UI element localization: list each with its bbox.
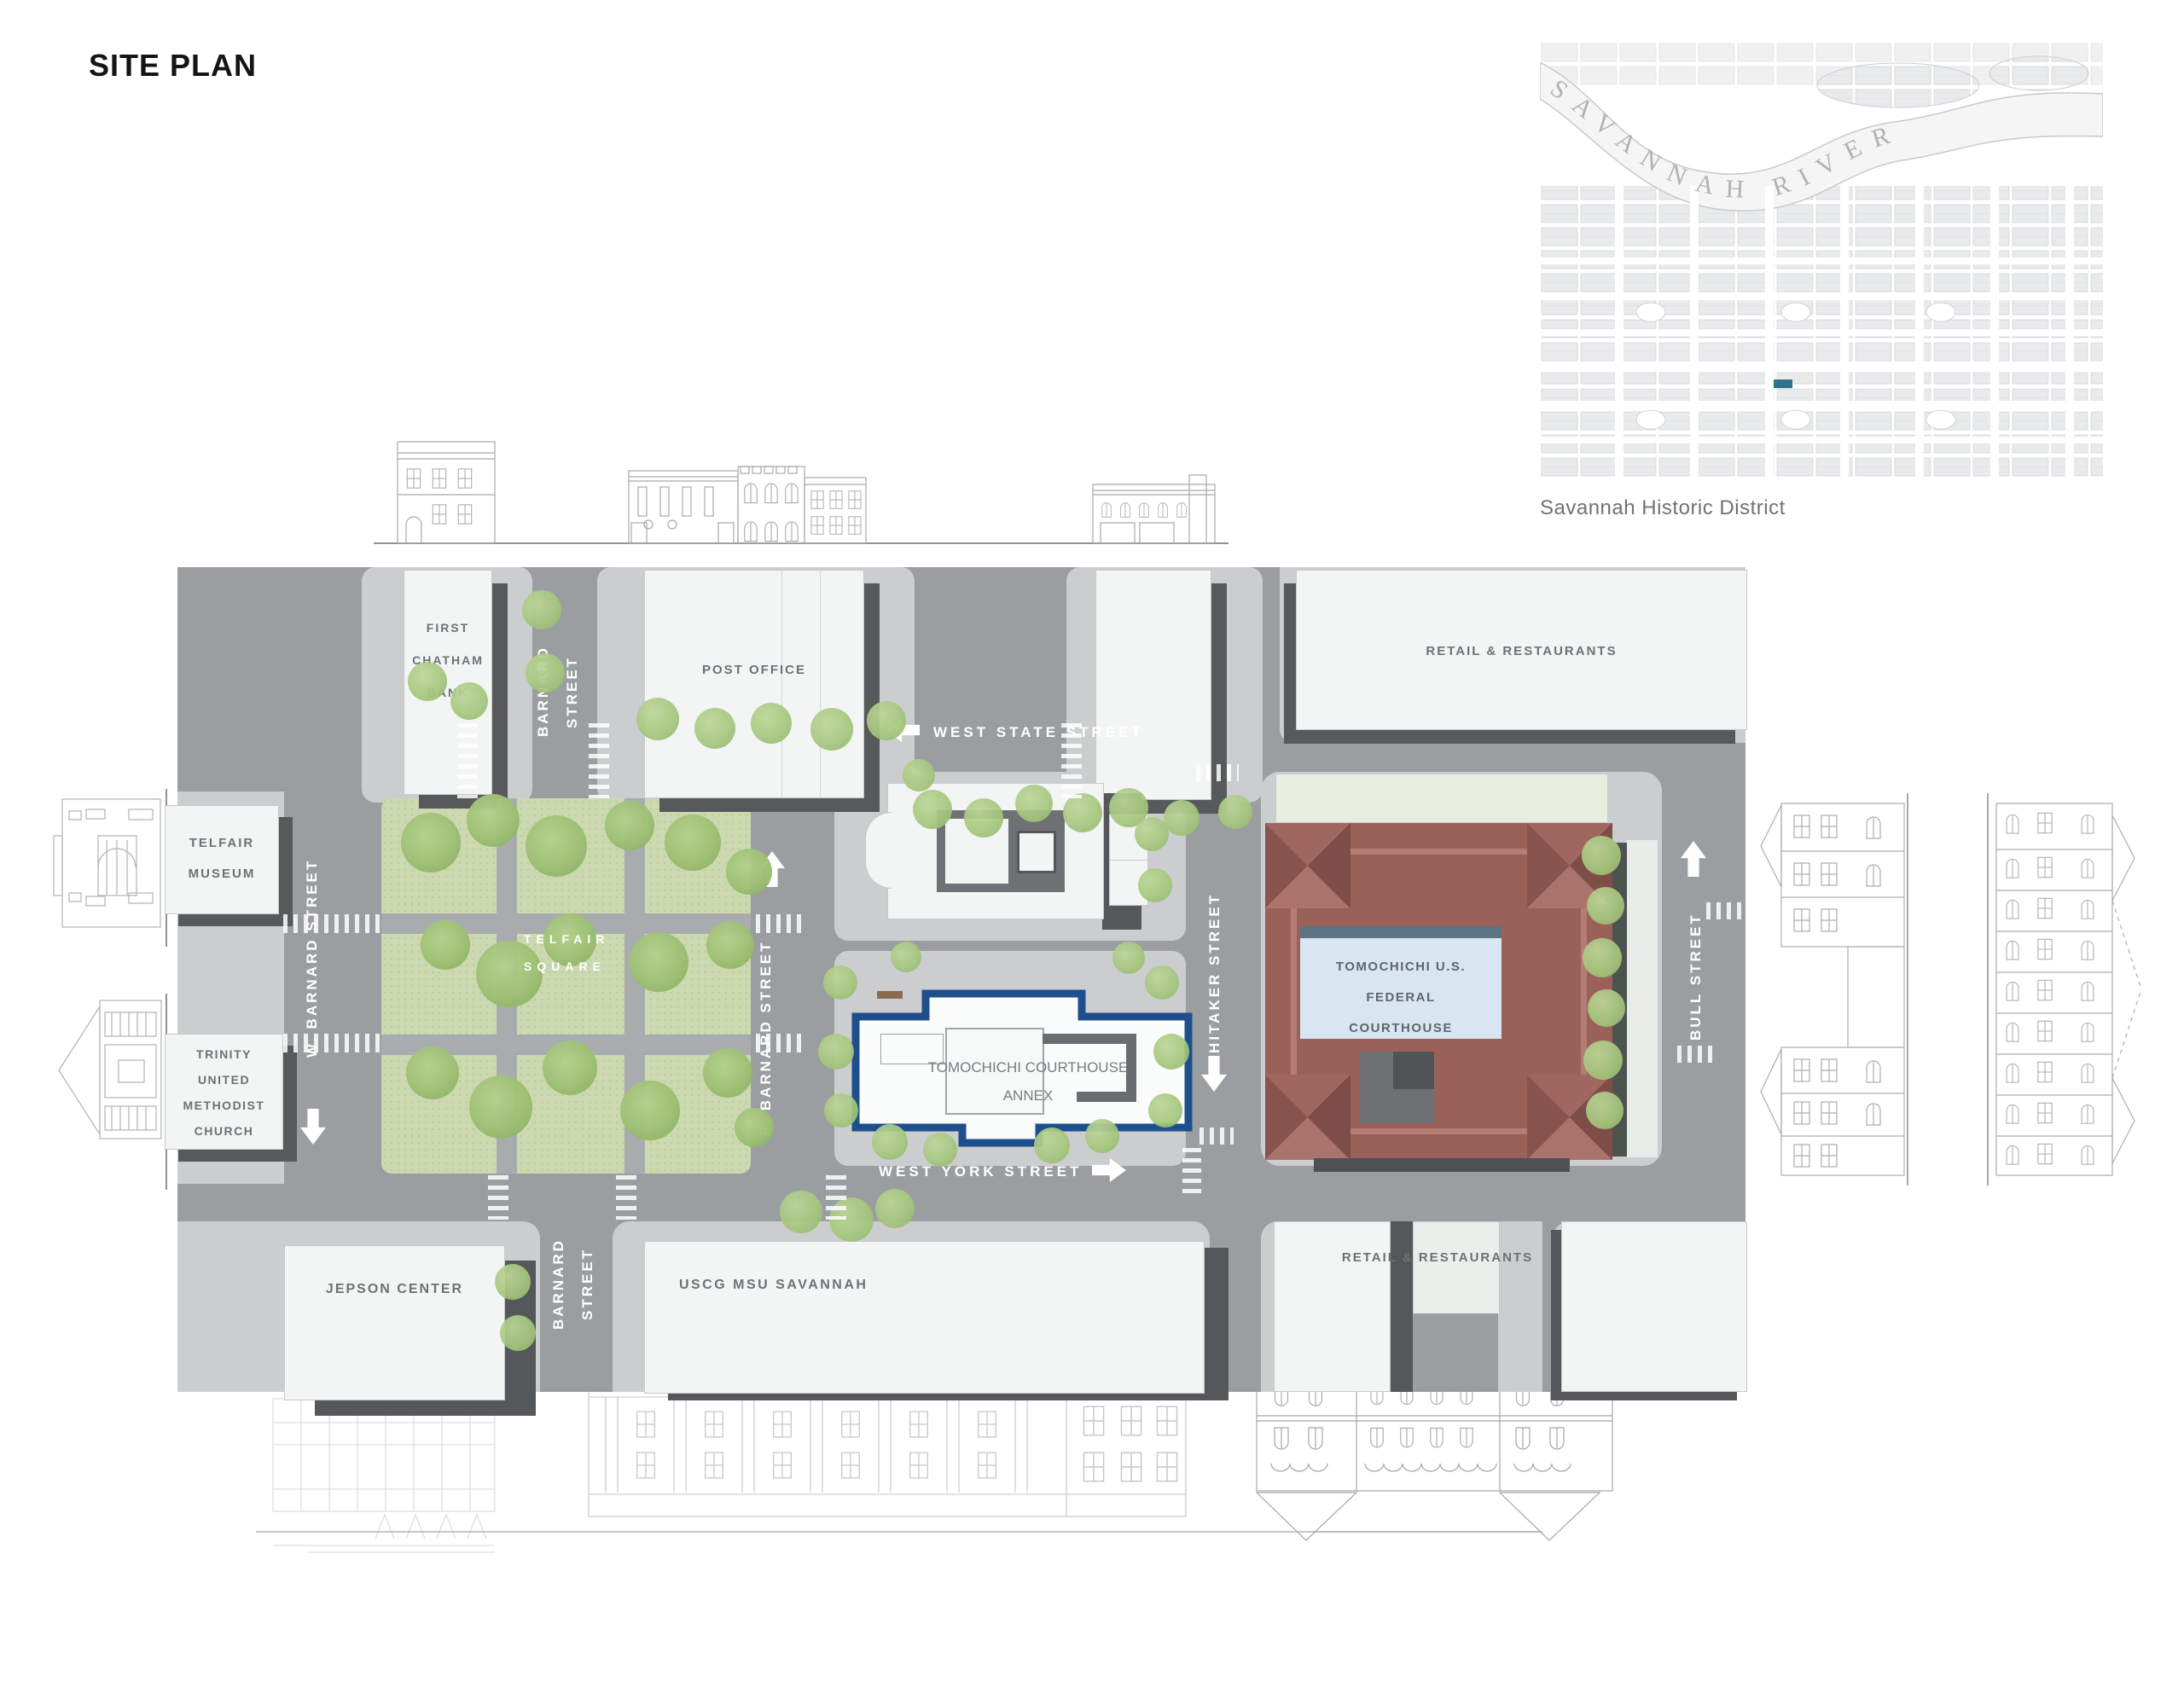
south-elevation-drawings [256,1363,1638,1619]
street-label-bull: BULL STREET [1687,885,1705,1069]
historic-map-graphic: SAVANNAH RIVER [1540,41,2103,489]
tree [421,920,470,970]
tree [810,708,853,751]
courthouse-entry-steps [1314,1158,1570,1172]
building-retail-se-tower2 [1561,1221,1747,1392]
courthouse-light-court [1359,1052,1434,1123]
tree [495,1264,531,1300]
street-label-barnard-north-2: STREET [564,623,581,761]
site-plan-page: SITE PLAN [0,0,2184,1687]
tree [526,815,587,877]
tree [620,1081,680,1140]
street-label-west-york: WEST YORK STREET [879,1163,1082,1180]
crosswalk [756,1034,804,1052]
tree [823,965,857,1000]
inset-map: SAVANNAH RIVER Savannah Historic Distric… [1540,41,2103,489]
post-office-label: POST OFFICE [645,663,863,677]
retail-se-label: RETAIL & RESTAURANTS [1314,1250,1561,1265]
tree [964,798,1003,838]
tree [694,708,735,749]
tree [1583,1041,1623,1080]
tree [629,932,688,992]
tree [401,813,461,872]
tree [1145,965,1179,1000]
crosswalk [283,914,384,933]
crosswalk [1199,1128,1234,1145]
tree [1138,868,1172,902]
tree [1588,989,1625,1027]
building-retail-se-tower1 [1274,1221,1391,1392]
crosswalk [616,1175,636,1220]
telfair-museum-label: TELFAIR MUSEUM [166,828,278,890]
building-uscg: USCG MSU SAVANNAH [644,1241,1205,1394]
tree [1015,785,1053,822]
tree [469,1075,532,1139]
tree [1583,938,1622,977]
east-elevation-drawings [1756,793,2148,1186]
tree [1085,1119,1119,1153]
west-elevation-drawings [47,789,183,1190]
crosswalk [283,1034,384,1052]
tree [1586,1092,1623,1129]
tree [500,1315,536,1351]
roof-pavilion [1265,823,1350,908]
annex-roof-bar [1043,1034,1136,1044]
courthouse-courtyard: TOMOCHICHI U.S. FEDERAL COURTHOUSE [1300,938,1501,1039]
tree [824,1093,858,1128]
tree [526,653,565,693]
tree [1112,942,1145,974]
tree [1587,887,1624,925]
street-label-w-barnard: W. BARNARD STREET [304,815,321,1101]
uscg-label: USCG MSU SAVANNAH [679,1278,868,1293]
church-apse [865,812,892,889]
building-post-office: POST OFFICE [644,570,864,798]
crosswalk [1706,902,1744,919]
tree [913,790,952,829]
courthouse-east-walk [1627,840,1658,1157]
tree [818,1034,854,1070]
tree [867,701,906,740]
courthouse-lawn [1276,774,1607,822]
tree [751,703,792,744]
crosswalk [1182,1148,1201,1196]
site-location-marker [1774,380,1792,388]
building-retail-se-mid [1413,1221,1500,1315]
tree [872,1124,908,1160]
tree [665,815,721,871]
inset-caption: Savannah Historic District [1540,496,1786,520]
tree [1148,1093,1182,1128]
building-telfair-museum: TELFAIR MUSEUM [165,805,279,914]
crosswalk [589,723,609,798]
north-elevation-drawings [367,431,1237,559]
tree [875,1189,915,1228]
church-skylight-2 [1017,831,1056,873]
tree [522,590,561,629]
tree [543,1041,597,1095]
tree [891,942,921,972]
tree [703,1048,752,1098]
tree [903,759,935,791]
crosswalk [756,914,804,933]
crosswalk [826,1175,846,1220]
tree [735,1108,774,1147]
building-retail-ne: RETAIL & RESTAURANTS [1296,570,1747,730]
tree [706,921,754,969]
tree [1063,793,1102,832]
tree [1153,1034,1189,1070]
crosswalk [1061,723,1082,798]
tree [1135,817,1169,851]
tree [450,682,488,720]
annex-label: TOMOCHICHI COURTHOUSE ANNEX [904,1053,1152,1110]
building-midtop [1095,570,1211,800]
retail-ne-label: RETAIL & RESTAURANTS [1297,644,1746,658]
building-federal-courthouse: TOMOCHICHI U.S. FEDERAL COURTHOUSE [1265,823,1612,1160]
tree [408,662,447,701]
jepson-center-label: JEPSON CENTER [285,1282,504,1297]
post-office-roof-line [820,571,821,797]
crosswalk [1196,764,1239,781]
street-label-west-state: WEST STATE STREET [933,724,1144,741]
crosswalk [1677,1046,1715,1063]
roof-pavilion [1265,1075,1350,1160]
building-trinity-church: TRINITY UNITED METHODIST CHURCH [165,1034,283,1150]
tree [726,849,772,895]
telfair-square-label: TELFAIR SQUARE [524,925,609,980]
courtyard-north-wall [1300,926,1501,938]
post-office-roof-line [781,571,782,797]
crosswalk [457,723,478,798]
crosswalk [488,1175,508,1220]
tree [605,801,654,850]
tree [406,1046,459,1099]
retail-se-mid-gap [1413,1313,1498,1392]
federal-courthouse-label: TOMOCHICHI U.S. FEDERAL COURTHOUSE [1300,952,1501,1044]
building-jepson-center: JEPSON CENTER [284,1245,505,1400]
tree [1034,1128,1070,1163]
bench [877,991,903,999]
street-label-barnard-south-1: BARNARD [550,1218,567,1350]
street-label-barnard-south-2: STREET [579,1218,596,1350]
tree [923,1133,957,1167]
tree [636,698,679,740]
tree [1164,800,1199,836]
tree [1582,836,1621,875]
trinity-church-label: TRINITY UNITED METHODIST CHURCH [166,1041,282,1144]
tree [1218,795,1252,829]
page-title: SITE PLAN [89,48,257,84]
tree [780,1191,822,1233]
tree [467,794,520,847]
